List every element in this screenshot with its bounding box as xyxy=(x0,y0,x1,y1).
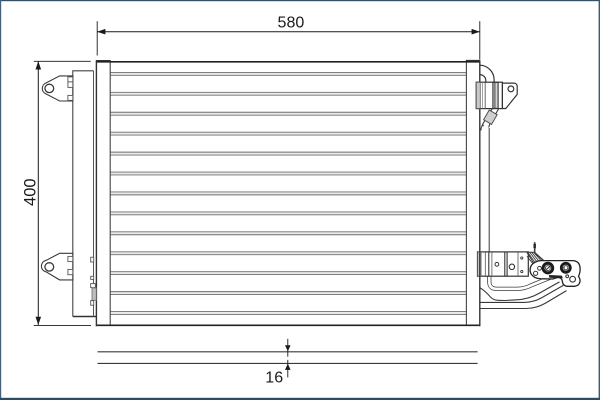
svg-text:16: 16 xyxy=(265,370,283,387)
svg-text:580: 580 xyxy=(278,15,305,32)
svg-text:400: 400 xyxy=(21,178,39,206)
